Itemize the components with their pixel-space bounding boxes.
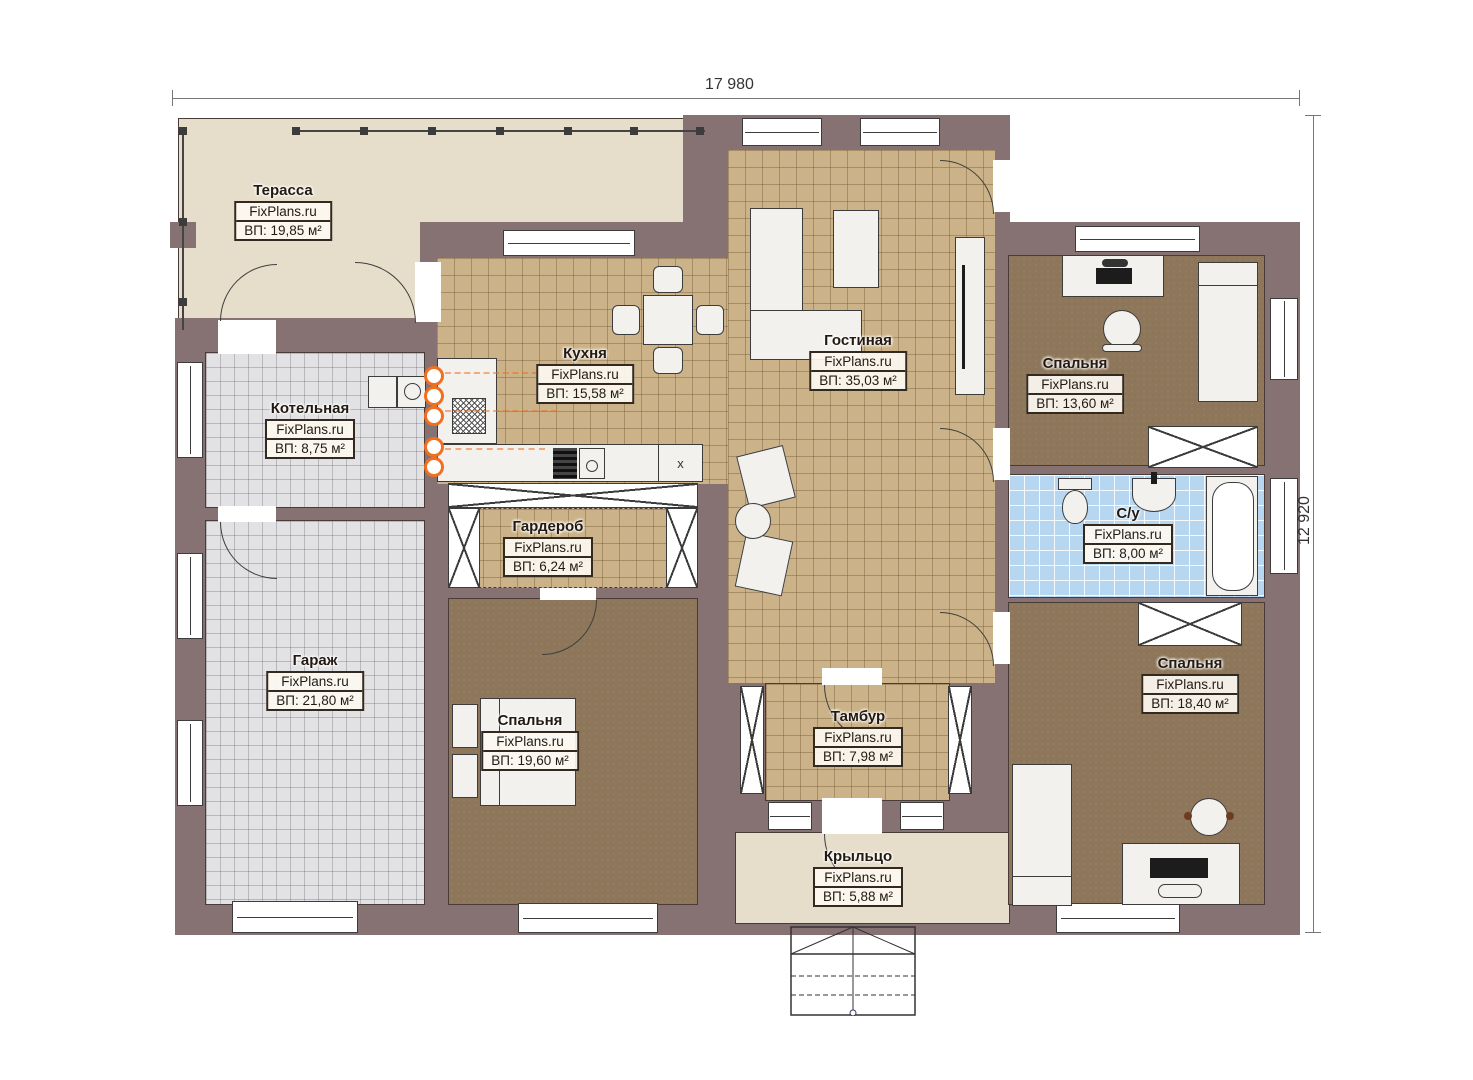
room-name: Спальня xyxy=(1141,655,1239,672)
window xyxy=(177,553,203,639)
heating-pipe-line xyxy=(445,410,557,412)
room-label-bedroom-top-right: Спальня FixPlans.ru ВП: 13,60 м² xyxy=(1026,355,1124,414)
chair-icon xyxy=(696,305,724,335)
room-name: Спальня xyxy=(481,712,579,729)
nightstand-icon xyxy=(452,704,478,748)
heating-pipe-line xyxy=(445,448,545,450)
room-name: Котельная xyxy=(265,400,355,417)
pot-handle-icon xyxy=(1226,812,1234,820)
toilet-tank-icon xyxy=(1058,478,1092,490)
terrace-post xyxy=(179,218,187,226)
window xyxy=(742,118,822,146)
office-chair-icon xyxy=(1103,310,1141,348)
room-area: ВП: 6,24 м² xyxy=(505,558,591,575)
door-opening xyxy=(993,160,1010,212)
closet-icon xyxy=(666,508,698,588)
door-opening xyxy=(993,612,1010,664)
pot-handle-icon xyxy=(1184,812,1192,820)
watermark: FixPlans.ru xyxy=(1085,526,1171,545)
right-dimension-tick-top xyxy=(1305,115,1321,116)
garage-door-opening xyxy=(232,901,358,933)
window xyxy=(900,802,944,830)
printer-tray-icon xyxy=(1102,259,1128,267)
door-opening xyxy=(218,320,276,354)
door-opening xyxy=(415,262,441,322)
room-label-living-room: Гостиная FixPlans.ru ВП: 35,03 м² xyxy=(809,332,907,391)
room-area: ВП: 35,03 м² xyxy=(811,372,905,389)
heating-valve-icon xyxy=(424,457,444,477)
computer-monitor-icon xyxy=(1150,858,1208,878)
kitchen-cabinet-x: x xyxy=(658,444,703,482)
watermark: FixPlans.ru xyxy=(815,729,901,748)
right-dimension-label: 12 920 xyxy=(1296,496,1314,545)
room-name: Гараж xyxy=(266,652,364,669)
plant-pot-icon xyxy=(1190,798,1228,836)
room-name: Терасса xyxy=(234,182,332,199)
heating-valve-icon xyxy=(424,366,444,386)
terrace-post xyxy=(564,127,572,135)
top-dimension-line xyxy=(172,98,1300,99)
room-name: Крыльцо xyxy=(813,848,903,865)
watermark: FixPlans.ru xyxy=(815,869,901,888)
top-dimension-tick-right xyxy=(1299,90,1300,106)
terrace-post xyxy=(360,127,368,135)
closet-icon xyxy=(948,686,972,794)
room-area: ВП: 18,40 м² xyxy=(1143,695,1237,712)
window xyxy=(1270,478,1298,574)
right-dimension-tick-bottom xyxy=(1305,932,1321,933)
watermark: FixPlans.ru xyxy=(538,366,632,385)
room-area: ВП: 19,60 м² xyxy=(483,752,577,769)
watermark: FixPlans.ru xyxy=(811,353,905,372)
watermark: FixPlans.ru xyxy=(1028,376,1122,395)
room-label-bedroom-left: Спальня FixPlans.ru ВП: 19,60 м² xyxy=(481,712,579,771)
printer-icon xyxy=(1096,268,1132,284)
terrace-post xyxy=(696,127,704,135)
room-label-bedroom-bottom-right: Спальня FixPlans.ru ВП: 18,40 м² xyxy=(1141,655,1239,714)
terrace-post xyxy=(630,127,638,135)
closet-icon xyxy=(1148,426,1258,468)
watermark: FixPlans.ru xyxy=(483,733,577,752)
bed-foot-icon xyxy=(1012,876,1072,906)
window xyxy=(860,118,940,146)
room-label-garage: Гараж FixPlans.ru ВП: 21,80 м² xyxy=(266,652,364,711)
room-name: Гостиная xyxy=(809,332,907,349)
watermark: FixPlans.ru xyxy=(268,673,362,692)
watermark: FixPlans.ru xyxy=(1143,676,1237,695)
sofa-icon xyxy=(750,208,803,314)
room-area: ВП: 7,98 м² xyxy=(815,748,901,765)
office-chair-back-icon xyxy=(1102,344,1142,352)
room-name: Тамбур xyxy=(813,708,903,725)
stove-icon xyxy=(452,398,486,434)
door-opening xyxy=(540,588,596,600)
room-area: ВП: 21,80 м² xyxy=(268,692,362,709)
keyboard-icon xyxy=(1158,884,1202,898)
window xyxy=(1075,226,1200,252)
room-name: С/у xyxy=(1083,505,1173,522)
boiler-dial-icon xyxy=(404,383,421,400)
door-opening xyxy=(218,506,276,522)
heating-valve-icon xyxy=(424,406,444,426)
garage-floor xyxy=(205,520,425,905)
watermark: FixPlans.ru xyxy=(267,421,353,440)
room-label-vestibule: Тамбур FixPlans.ru ВП: 7,98 м² xyxy=(813,708,903,767)
door-opening xyxy=(993,428,1010,480)
boiler-divider xyxy=(396,377,398,407)
room-area: ВП: 19,85 м² xyxy=(236,222,330,239)
closet-icon xyxy=(1138,602,1242,646)
window xyxy=(768,802,812,830)
bed-pillow-icon xyxy=(1198,262,1258,286)
room-label-kitchen: Кухня FixPlans.ru ВП: 15,58 м² xyxy=(536,345,634,404)
entry-door-opening xyxy=(822,798,882,834)
room-label-bathroom: С/у FixPlans.ru ВП: 8,00 м² xyxy=(1083,505,1173,564)
room-area: ВП: 8,00 м² xyxy=(1085,545,1171,562)
dining-table-icon xyxy=(643,295,693,345)
bathtub-inner-icon xyxy=(1212,482,1254,591)
chair-icon xyxy=(653,266,683,293)
tv-icon xyxy=(962,265,965,369)
terrace-post xyxy=(292,127,300,135)
top-dimension-tick-left xyxy=(172,90,173,106)
room-area: ВП: 8,75 м² xyxy=(267,440,353,457)
room-name: Гардероб xyxy=(503,518,593,535)
floor-plan: 17 980 12 920 xyxy=(0,0,1473,1080)
top-dimension-label: 17 980 xyxy=(705,76,754,94)
window xyxy=(1270,298,1298,380)
window xyxy=(177,720,203,806)
chair-icon xyxy=(612,305,640,335)
terrace-post xyxy=(496,127,504,135)
heating-valve-icon xyxy=(424,437,444,457)
faucet-icon xyxy=(1151,472,1157,484)
watermark: FixPlans.ru xyxy=(505,539,591,558)
closet-icon xyxy=(740,686,764,794)
room-label-terrace: Терасса FixPlans.ru ВП: 19,85 м² xyxy=(234,182,332,241)
side-table-icon xyxy=(735,503,771,539)
terrace-post xyxy=(179,298,187,306)
room-area: ВП: 13,60 м² xyxy=(1028,395,1122,412)
chair-icon xyxy=(653,347,683,374)
room-name: Спальня xyxy=(1026,355,1124,372)
closet-icon xyxy=(448,483,698,508)
terrace-post xyxy=(428,127,436,135)
room-area: ВП: 15,58 м² xyxy=(538,385,632,402)
window xyxy=(518,903,658,933)
room-label-porch: Крыльцо FixPlans.ru ВП: 5,88 м² xyxy=(813,848,903,907)
window xyxy=(1056,903,1180,933)
sink-drain-icon xyxy=(586,460,598,472)
nightstand-icon xyxy=(452,754,478,798)
window xyxy=(177,362,203,458)
door-opening xyxy=(822,668,882,685)
watermark: FixPlans.ru xyxy=(236,203,330,222)
porch-steps xyxy=(790,926,916,1016)
tv-unit-icon xyxy=(955,237,985,395)
room-label-wardrobe: Гардероб FixPlans.ru ВП: 6,24 м² xyxy=(503,518,593,577)
terrace-post xyxy=(179,127,187,135)
room-label-boiler-room: Котельная FixPlans.ru ВП: 8,75 м² xyxy=(265,400,355,459)
room-area: ВП: 5,88 м² xyxy=(815,888,901,905)
window xyxy=(503,230,635,256)
room-name: Кухня xyxy=(536,345,634,362)
dishwasher-icon xyxy=(553,448,577,479)
closet-icon xyxy=(448,508,480,588)
coffee-table-icon xyxy=(833,210,879,288)
heating-valve-icon xyxy=(424,386,444,406)
